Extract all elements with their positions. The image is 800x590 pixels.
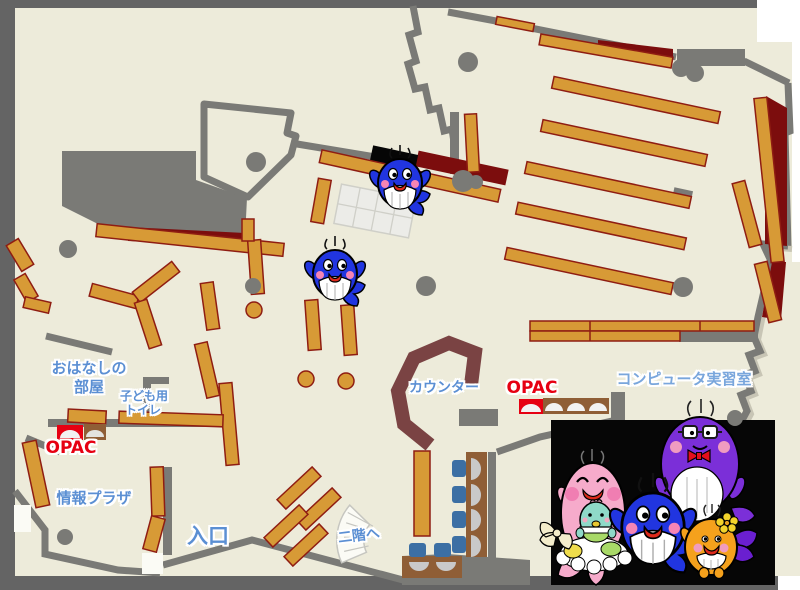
round-table [246, 302, 262, 318]
counter-back-cabinet [459, 409, 498, 426]
bookshelf [530, 331, 680, 341]
chair [434, 543, 451, 557]
pillar [686, 64, 704, 82]
label-storytelling-room-line2: 部屋 [74, 380, 104, 396]
chair [452, 486, 466, 503]
label-opac-right: OPAC [507, 380, 558, 398]
bookshelf [242, 219, 254, 241]
label-info-plaza: 情報プラザ [56, 491, 131, 507]
pillar [416, 276, 436, 296]
label-opac-left: OPAC [46, 440, 97, 458]
bookshelf [464, 114, 479, 173]
bookshelf [341, 305, 357, 356]
chair [409, 543, 426, 557]
round-table [338, 373, 354, 389]
pillar [246, 152, 266, 172]
label-entrance: 入口 [187, 525, 229, 547]
pillar [57, 529, 73, 545]
chair [452, 511, 466, 528]
label-counter: カウンター [409, 381, 479, 396]
pillar [469, 175, 483, 189]
bookshelf [414, 451, 430, 536]
label-kids-toilet-line1: 子ども用 [120, 390, 168, 403]
pillar [727, 410, 743, 426]
label-computer-room: コンピュータ実習室 [616, 372, 751, 388]
chair [452, 536, 466, 553]
chair [452, 460, 466, 477]
bookshelf [530, 321, 754, 331]
pillar [59, 240, 77, 258]
library-floor-map: おはなしの 部屋 子ども用 トイレ OPAC 情報プラザ 入口 カウンター OP… [0, 0, 800, 590]
label-storytelling-room-line1: おはなしの [51, 361, 126, 377]
bookshelf [68, 409, 107, 424]
round-table [298, 371, 314, 387]
bookshelf [150, 467, 165, 516]
label-kids-toilet-line2: トイレ [125, 404, 161, 417]
pillar [245, 278, 261, 294]
whale-family-photo [540, 399, 775, 585]
bookshelf [305, 300, 321, 351]
pillar [673, 277, 693, 297]
opac-terminals-right [519, 398, 609, 414]
pillar [458, 52, 478, 72]
